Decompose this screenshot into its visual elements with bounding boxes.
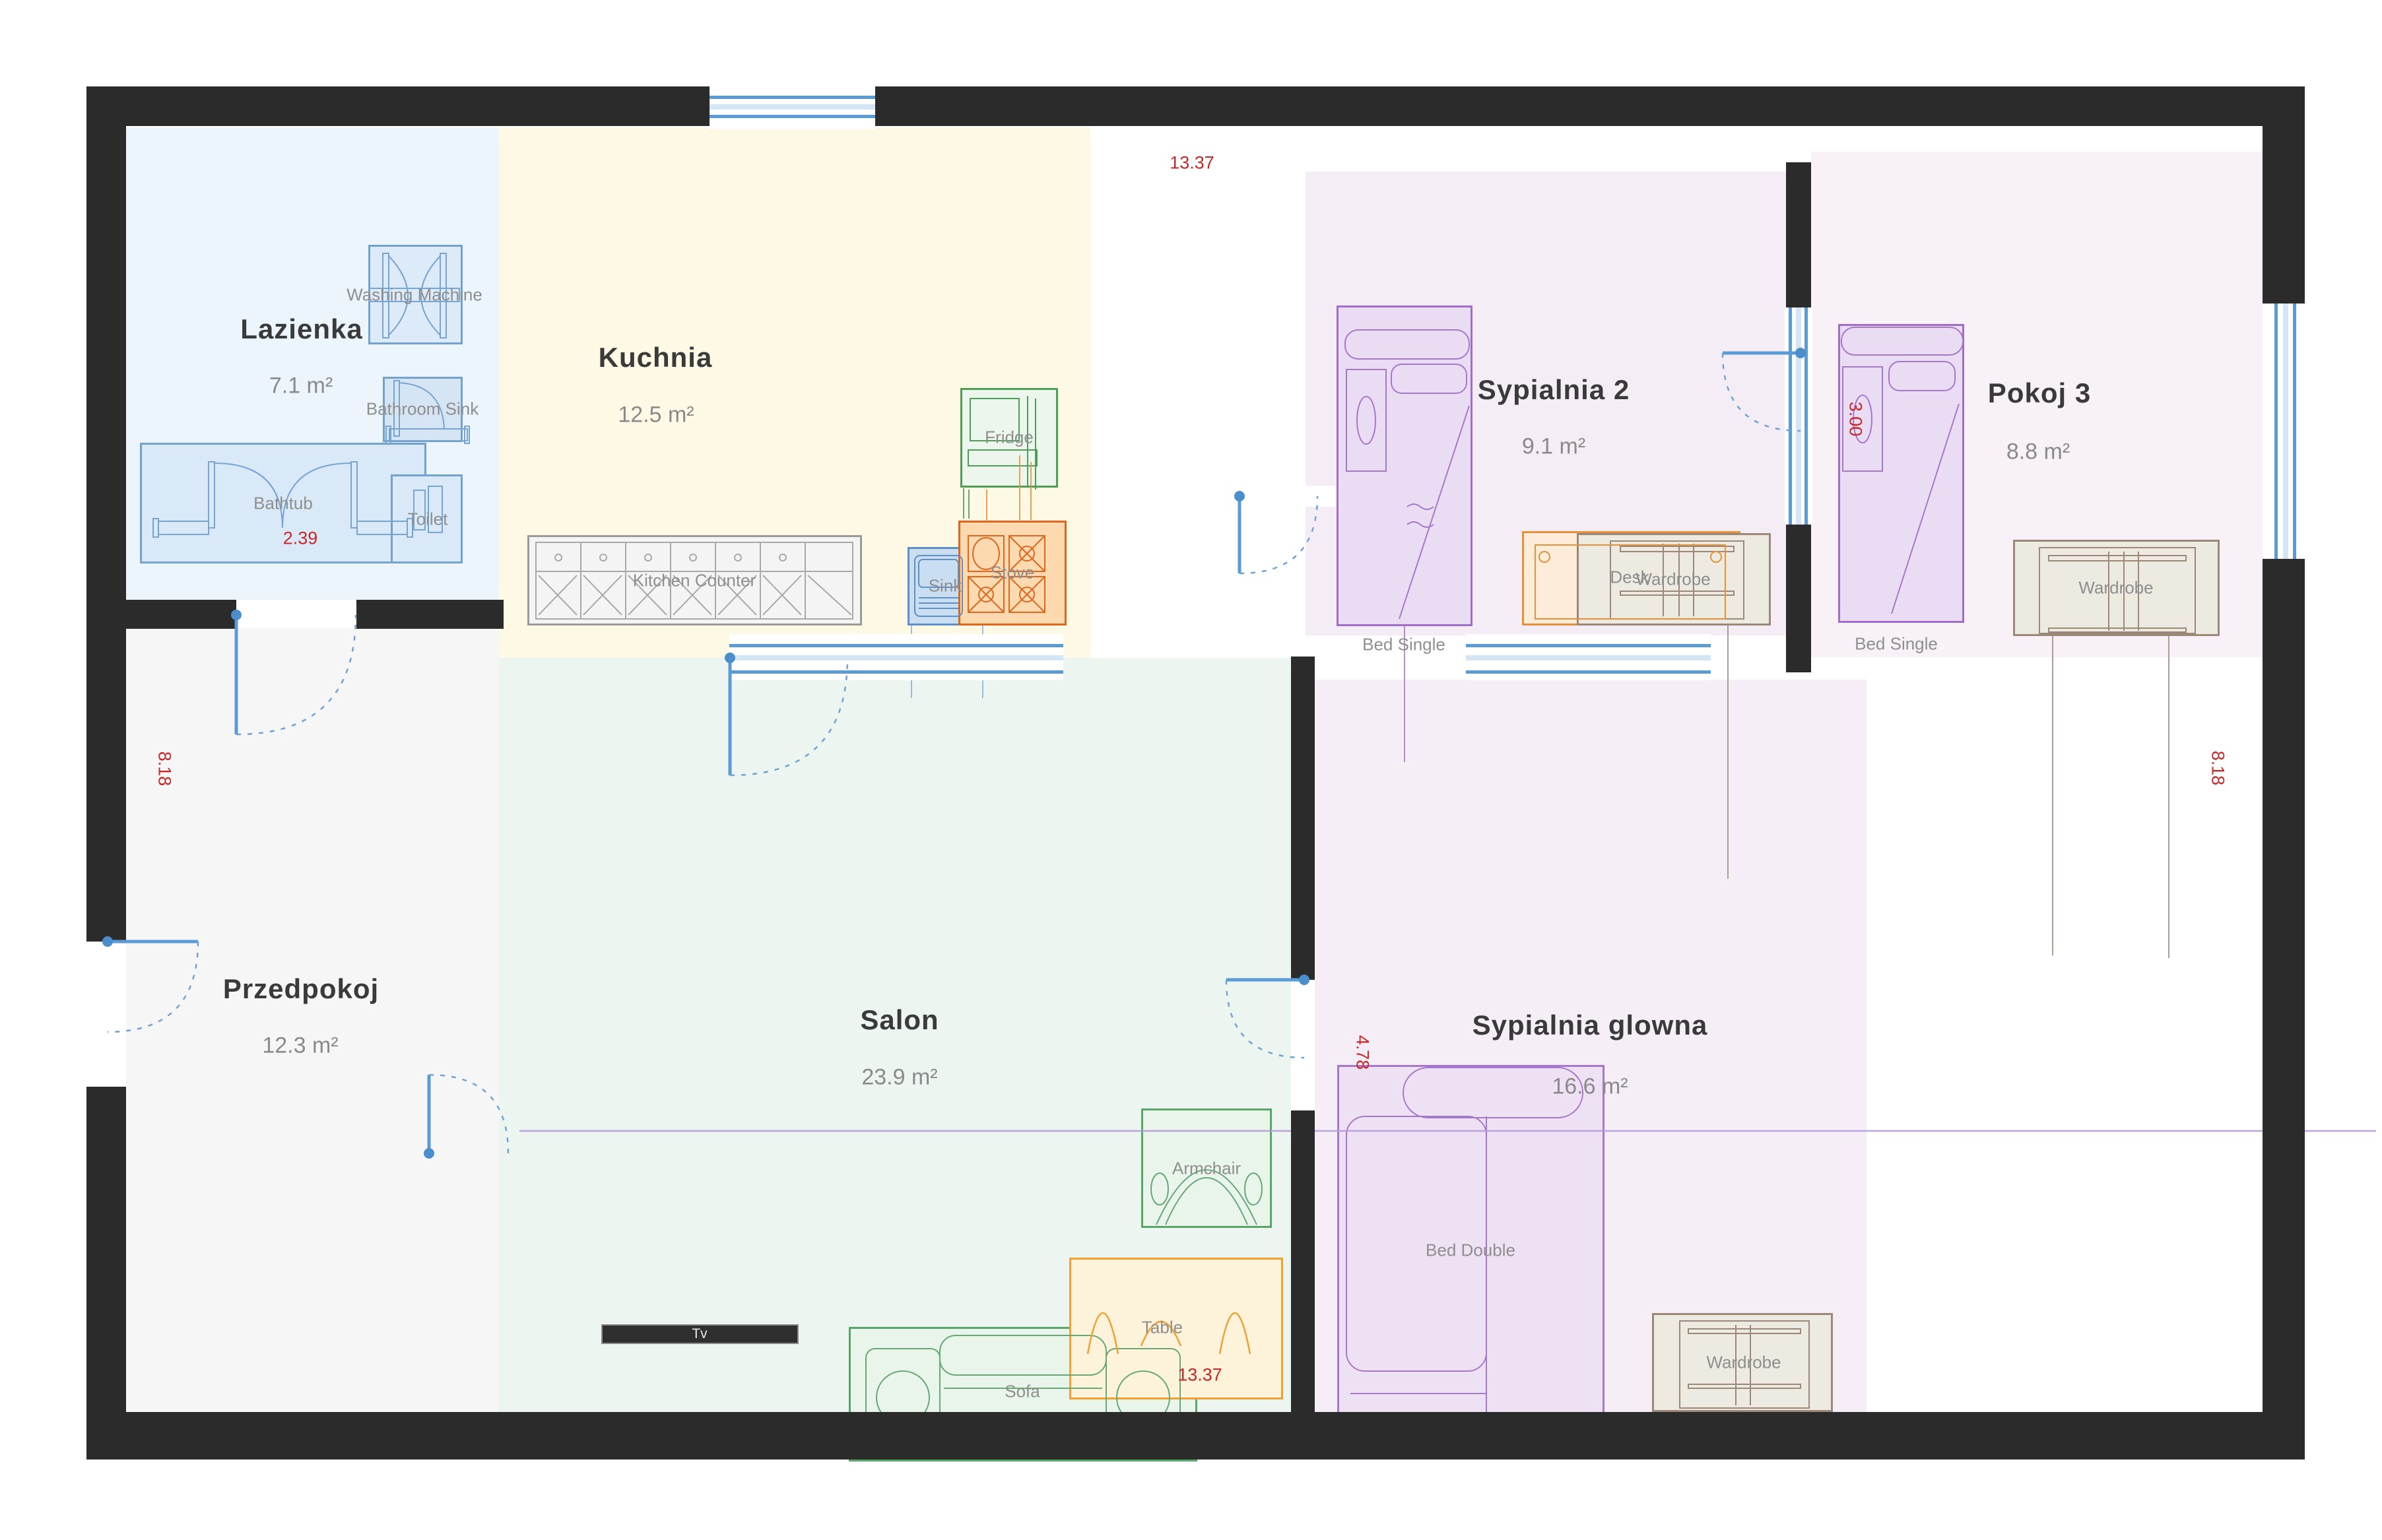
label-sofa: Sofa <box>1005 1382 1040 1402</box>
room-title-sypialnia-glowna: Sypialnia glowna <box>1472 1010 1708 1041</box>
room-area-kuchnia: 12.5 m² <box>618 402 694 428</box>
label-toilet: Toilet <box>408 509 448 530</box>
floor-plan: Lazienka 7.1 m² Kuchnia 12.5 m² Sypialni… <box>0 0 2382 1540</box>
label-wardrobe-sypialnia2: Wardrobe <box>1636 569 1710 590</box>
dimension-glowna-width: 4.78 <box>1352 1035 1373 1070</box>
label-bed-double: Bed Double <box>1426 1240 1515 1261</box>
label-table: Table <box>1142 1318 1183 1338</box>
dimension-bottom-width: 13.37 <box>1177 1365 1222 1386</box>
room-title-kuchnia: Kuchnia <box>599 342 713 373</box>
room-title-sypialnia2: Sypialnia 2 <box>1478 374 1630 406</box>
room-area-pokoj3: 8.8 m² <box>2006 439 2070 465</box>
dimension-bathtub: 2.39 <box>283 529 318 549</box>
label-sink: Sink <box>929 576 962 596</box>
label-fridge: Fridge <box>985 428 1034 448</box>
label-bathtub: Bathtub <box>253 494 313 514</box>
door-layer <box>0 0 2382 1540</box>
room-area-przedpokoj: 12.3 m² <box>262 1033 338 1059</box>
label-washing-machine: Washing Machine <box>347 285 482 305</box>
dimension-left-height: 8.18 <box>154 752 175 786</box>
label-kitchen-counter: Kitchen Counter <box>633 571 756 591</box>
room-area-sypialnia-glowna: 16.6 m² <box>1552 1074 1628 1100</box>
label-wardrobe-glowna: Wardrobe <box>1706 1353 1781 1373</box>
label-bed-single-sypialnia2: Bed Single <box>1362 635 1445 655</box>
label-armchair: Armchair <box>1172 1159 1241 1179</box>
label-tv: Tv <box>692 1326 707 1342</box>
room-area-lazienka: 7.1 m² <box>269 373 333 399</box>
label-stove: Stove <box>991 563 1035 583</box>
room-area-sypialnia2: 9.1 m² <box>1522 434 1585 460</box>
room-title-pokoj3: Pokoj 3 <box>1988 377 2091 409</box>
label-bathroom-sink: Bathroom Sink <box>366 399 479 420</box>
dimension-pokoj3-bed: 3.00 <box>1845 402 1866 437</box>
dimension-right-height: 8.18 <box>2208 751 2228 786</box>
label-bed-single-pokoj3: Bed Single <box>1855 634 1938 655</box>
room-title-lazienka: Lazienka <box>240 313 362 345</box>
room-area-salon: 23.9 m² <box>861 1065 937 1091</box>
dimension-top-width: 13.37 <box>1170 153 1214 174</box>
label-wardrobe-pokoj3: Wardrobe <box>2078 578 2153 598</box>
room-title-salon: Salon <box>860 1004 939 1036</box>
room-title-przedpokoj: Przedpokoj <box>223 973 379 1005</box>
